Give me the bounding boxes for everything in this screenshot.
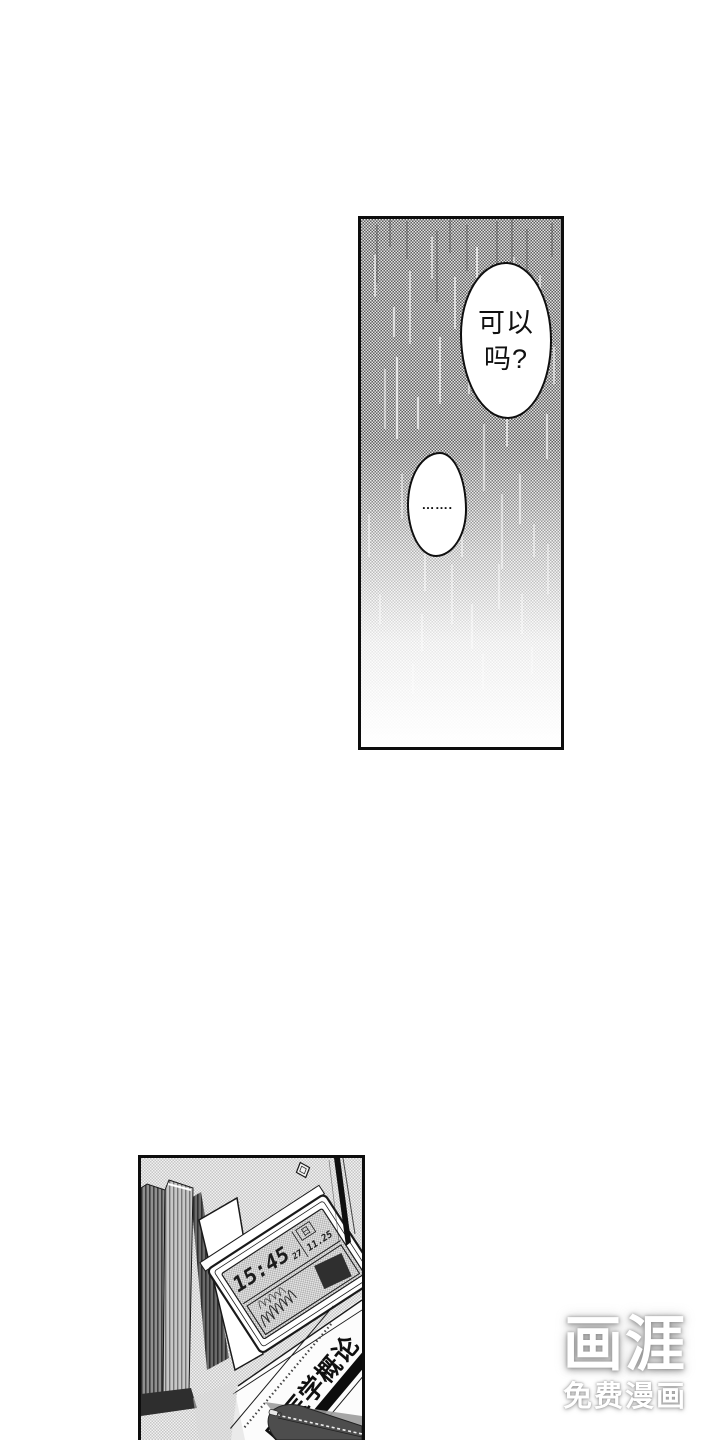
watermark-logo: 画涯 (563, 1312, 687, 1378)
book-spine-light (163, 1180, 193, 1394)
books (141, 1180, 197, 1416)
speech-text-ellipsis: ……. (421, 497, 452, 512)
panel-rain: 可以 吗? ……. (358, 216, 564, 750)
speech-text-line2: 吗? (484, 341, 528, 377)
panel-desk: 15:45 27 日 11.25 (138, 1155, 365, 1440)
manga-page: { "page": { "background": "#ffffff" }, "… (0, 0, 720, 1440)
watermark-tagline: 免费漫画 (563, 1380, 687, 1414)
watermark: 画涯 免费漫画 (563, 1312, 687, 1414)
desk-scene: 15:45 27 日 11.25 (141, 1158, 362, 1440)
speech-text-line1: 可以 (478, 305, 534, 341)
book-spine-dark (141, 1184, 165, 1402)
speech-bubble-small: ……. (407, 452, 467, 557)
speech-bubble-large: 可以 吗? (460, 262, 552, 419)
